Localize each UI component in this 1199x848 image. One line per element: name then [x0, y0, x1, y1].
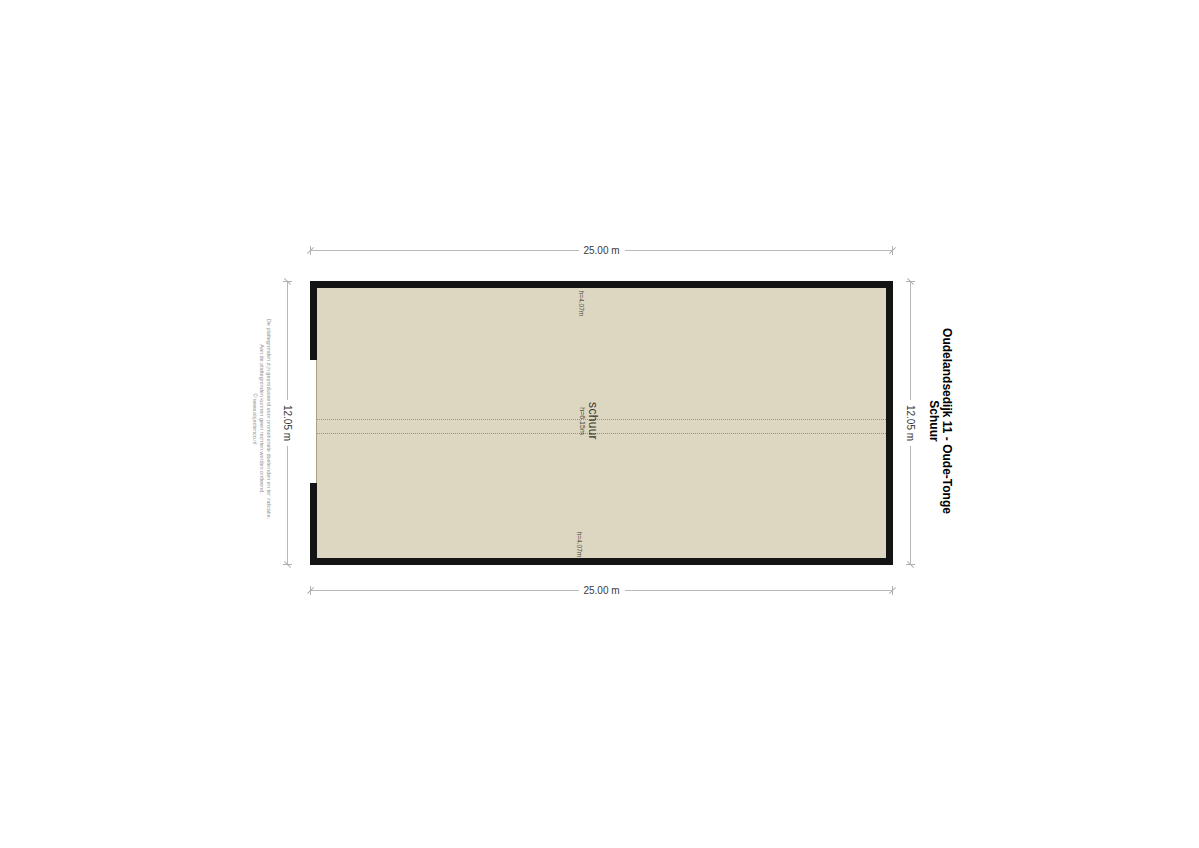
- disclaimer-line-3: © www.objectenco.nl: [251, 289, 258, 549]
- dimension-label-top: 25.00 m: [578, 245, 624, 256]
- ridge-dashed-line-lower: [317, 433, 886, 434]
- dimension-label-right: 12.05 m: [905, 400, 916, 446]
- height-label-top: h=4.07m: [577, 279, 586, 329]
- title-block: Oudelandsedijk 11 - Oude-Tonge Schuur: [926, 321, 954, 521]
- ridge-dashed-line-upper: [317, 419, 886, 420]
- disclaimer-block: De plattegronden zijn geproduceerd voor …: [250, 289, 272, 549]
- room-label-block: schuur h=6.15m: [577, 391, 599, 451]
- disclaimer-line-1: De plattegronden zijn geproduceerd voor …: [265, 289, 272, 549]
- height-label-bottom: h=4.07m: [575, 520, 584, 570]
- disclaimer-line-2: Aan de plattegronden kunnen geen rechten…: [258, 289, 265, 549]
- dimension-label-bottom: 25.00 m: [578, 585, 624, 596]
- title-floor: Schuur: [927, 321, 940, 521]
- door-opening-floor-edge: [316, 360, 317, 483]
- dimension-label-left: 12.05 m: [282, 400, 293, 446]
- floor-plan-canvas: h=4.07m schuur h=6.15m h=4.07m 25.00 m 2…: [0, 0, 1199, 848]
- room-height-label: h=6.15m: [578, 391, 586, 451]
- room-schuur-outline: [310, 281, 893, 565]
- room-name-label: schuur: [586, 391, 599, 451]
- title-address: Oudelandsedijk 11 - Oude-Tonge: [940, 321, 954, 521]
